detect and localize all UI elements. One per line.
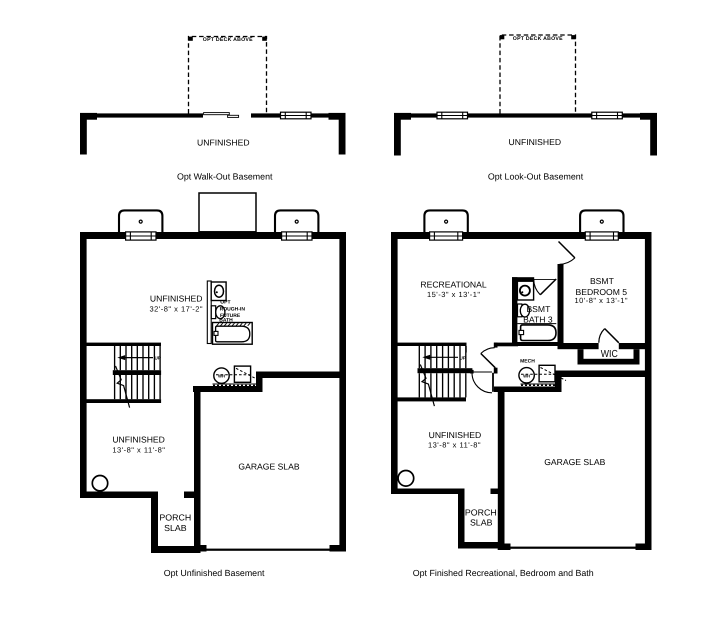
svg-text:GARAGE SLAB: GARAGE SLAB xyxy=(238,461,299,471)
svg-text:BATH 3: BATH 3 xyxy=(523,315,553,325)
svg-text:RECREATIONAL: RECREATIONAL xyxy=(420,279,486,289)
svg-text:MECH: MECH xyxy=(520,358,535,364)
svg-text:UNFINISHED: UNFINISHED xyxy=(429,430,482,440)
svg-text:UNFINISHED: UNFINISHED xyxy=(112,435,165,445)
svg-text:OPT: OPT xyxy=(220,300,230,306)
svg-text:OPT DECK ABOVE: OPT DECK ABOVE xyxy=(203,37,253,43)
svg-text:WIC: WIC xyxy=(601,349,618,360)
svg-text:GARAGE SLAB: GARAGE SLAB xyxy=(544,457,605,467)
svg-text:BATH: BATH xyxy=(219,317,233,323)
svg-text:PORCH: PORCH xyxy=(159,513,191,523)
svg-text:UNFINISHED: UNFINISHED xyxy=(509,137,562,147)
svg-text:15'-3" x 13'-1": 15'-3" x 13'-1" xyxy=(427,290,481,299)
svg-text:Opt Unfinished Basement: Opt Unfinished Basement xyxy=(164,568,265,578)
svg-text:Opt Finished Recreational, Bed: Opt Finished Recreational, Bedroom and B… xyxy=(413,568,594,578)
svg-text:OPT DECK ABOVE: OPT DECK ABOVE xyxy=(513,36,563,42)
svg-text:13'-8" x 11'-8": 13'-8" x 11'-8" xyxy=(428,440,481,449)
svg-text:UNFINISHED: UNFINISHED xyxy=(197,137,250,147)
svg-text:SLAB: SLAB xyxy=(164,523,187,533)
svg-text:Opt Look-Out Basement: Opt Look-Out Basement xyxy=(488,172,584,182)
svg-text:SLAB: SLAB xyxy=(470,518,493,528)
svg-text:10'-8" x 13'-1": 10'-8" x 13'-1" xyxy=(574,296,628,305)
svg-text:BSMT: BSMT xyxy=(590,276,615,286)
svg-text:Opt Walk-Out Basement: Opt Walk-Out Basement xyxy=(177,172,273,182)
svg-text:UP: UP xyxy=(155,356,161,361)
svg-text:UNFINISHED: UNFINISHED xyxy=(150,294,203,304)
svg-text:ROUGH-IN: ROUGH-IN xyxy=(220,306,246,312)
svg-text:13'-8" x 11'-8": 13'-8" x 11'-8" xyxy=(112,445,165,454)
svg-text:UP: UP xyxy=(460,355,466,360)
svg-text:BSMT: BSMT xyxy=(526,304,551,314)
svg-text:PORCH: PORCH xyxy=(465,507,497,517)
svg-text:32'-8" x 17'-2": 32'-8" x 17'-2" xyxy=(149,304,203,313)
